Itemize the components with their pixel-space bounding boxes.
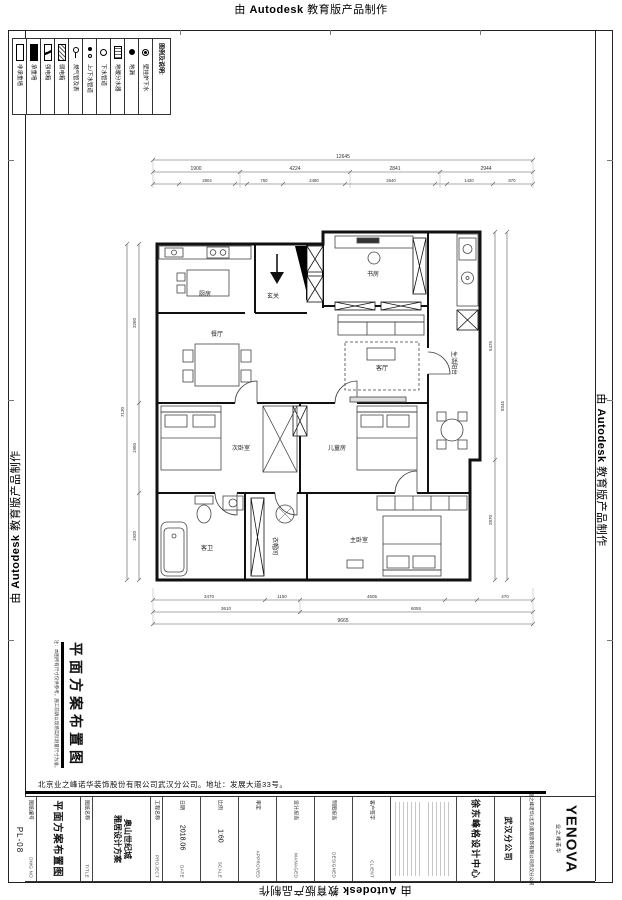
legend-item: 弱电箱 (55, 39, 69, 114)
banner-prefix: 由 (234, 4, 246, 16)
legend-label: 壁挂炉下水 (142, 64, 150, 110)
floor-plan: 12645 1900 4224 2841 2944 2804 760 2480 … (95, 148, 585, 653)
title-block: 图纸编号DWG NO 平面方案布置图 图纸名称TITLE 奥山世纪城雅居设计方案… (25, 796, 595, 882)
tb-value: 徐东峰格设计中心 (469, 799, 482, 879)
dimension-text-left: 3260 1950 1920 7130 (120, 317, 137, 541)
tb-label: MANAGED (293, 853, 298, 878)
yenova-logo: YENOVA (563, 805, 580, 873)
boiler-drain-icon (139, 42, 152, 62)
legend-label: 非承重墙 (16, 64, 24, 110)
legend-label: 地漏 (128, 64, 136, 110)
dim: 6055 (411, 606, 422, 611)
dim: 2480 (309, 178, 319, 183)
fold-tick (180, 30, 181, 35)
tb-label: 审定 (254, 800, 261, 810)
dim: 2841 (389, 166, 400, 172)
dimension-text-right: 5475 2870 8345 (488, 340, 505, 525)
dimension-chain-top (151, 158, 535, 188)
tb-branch: 武汉分公司 (495, 797, 521, 881)
bearing-wall-hatch (251, 238, 478, 576)
sheet-title-block: 平面方案布置图 注：本图所有尺寸仅供参考，施工前请以现场实际测量尺寸为准。 (44, 630, 96, 780)
tb-title-labels: 图纸名称TITLE (81, 797, 93, 881)
tb-label: DATE (179, 865, 184, 878)
banner-suffix: 教育版产品制作 (307, 4, 388, 16)
dim-left-total: 7130 (120, 406, 125, 417)
tb-label: 制图担当 (330, 800, 337, 820)
legend-item: 燃气管及表 (69, 39, 83, 114)
tb-label: CLIENT (369, 860, 374, 878)
room-label-bath: 客卫 (201, 544, 213, 552)
room-label-bedroom: 次卧室 (232, 444, 250, 452)
tb-project-value: 奥山世纪城雅居设计方案 (93, 797, 151, 881)
legend-label: 强电箱 (44, 64, 52, 110)
tb-sheet-title-value: 平面方案布置图 (37, 797, 81, 881)
tb-label: 客户签字 (368, 800, 375, 820)
bearing-wall-icon (27, 42, 40, 62)
legend-item: 非承重墙 (13, 39, 27, 114)
strong-power-box-icon (41, 42, 54, 62)
room-label-entry: 玄关 (267, 292, 279, 300)
room-label-kitchen: 厨房 (199, 290, 211, 298)
tb-label: DESIGNED (331, 852, 336, 878)
tb-date: 日期2018.06DATE (163, 797, 201, 881)
tb-label: 图纸编号 (27, 800, 34, 820)
drain-pipe-icon (97, 42, 110, 62)
tb-client: 客户签字CLIENT (353, 797, 391, 881)
legend-item: 上/下水管道 (83, 39, 97, 114)
non-bearing-wall-icon (13, 42, 26, 62)
tb-design-center: 徐东峰格设计中心 (457, 797, 495, 881)
room-label-study: 书房 (367, 270, 379, 278)
legend-item: 地暖分水器 (111, 39, 125, 114)
tb-project-labels: 工程名称PROJECT (151, 797, 163, 881)
tb-value: 武汉分公司 (502, 817, 513, 862)
floor-drain-icon (125, 42, 138, 62)
tb-value: 平面方案布置图 (51, 801, 66, 878)
sheet-title: 平面方案布置图 (62, 642, 87, 768)
room-label-living: 客厅 (376, 364, 388, 372)
dim: 870 (508, 178, 516, 183)
autodesk-wordmark: Autodesk (249, 4, 303, 16)
dim: 1150 (277, 594, 287, 599)
dim: 470 (501, 594, 509, 599)
dim: 4605 (367, 594, 378, 599)
tb-label: 日期 (178, 800, 185, 810)
gas-pipe-meter-icon (69, 42, 82, 62)
entry-door-leaf (295, 246, 307, 294)
yenova-logo-sub: 业之峰诺华 (555, 824, 562, 854)
tb-label: 工程名称 (153, 800, 160, 820)
fold-tick (8, 160, 14, 161)
dim-top-total: 12645 (336, 154, 350, 160)
dim: 1920 (132, 530, 137, 541)
tb-dwgno-labels: 图纸编号DWG NO (25, 797, 37, 881)
room-label-kids: 儿童房 (328, 444, 346, 452)
tb-label: 比例 (216, 800, 223, 810)
tb-label: PROJECT (154, 855, 159, 878)
titleblock-divider (25, 791, 546, 794)
legend-label: 上/下水管道 (86, 64, 94, 110)
dim: 1950 (132, 442, 137, 453)
tb-approved: 审定APPROVED (239, 797, 277, 881)
fold-tick (607, 160, 613, 161)
door-swings (215, 352, 450, 515)
fold-tick (480, 30, 481, 35)
dim: 3470 (204, 594, 215, 599)
legend-header: 图例及说明: (153, 39, 170, 114)
fold-tick (607, 640, 613, 641)
tb-label: DWG NO (28, 857, 33, 878)
legend-label: 弱电箱 (58, 64, 66, 110)
floor-heating-manifold-icon (111, 42, 124, 62)
tb-value: 雅居设计方案 (113, 815, 122, 863)
fine-print-lines (395, 802, 420, 876)
dim-bottom-total: 9665 (337, 618, 348, 624)
legend-item: 壁挂炉下水 (139, 39, 153, 114)
tb-label: SCALE (217, 862, 222, 878)
fold-tick (8, 400, 14, 401)
fold-tick (330, 30, 331, 35)
dim: 2944 (480, 166, 491, 172)
tb-value: 奥山世纪城 (123, 819, 132, 859)
legend-item: 地漏 (125, 39, 139, 114)
company-address-line: 北京业之峰诺华装饰股份有限公司武汉分公司。地址：发展大道33号。 (38, 779, 458, 790)
room-label-dining: 餐厅 (211, 330, 223, 338)
legend-item: 承重墙 (27, 39, 41, 114)
weak-power-box-icon (55, 42, 68, 62)
fine-print-lines (428, 802, 453, 876)
autodesk-banner-bottom: 由 Autodesk 教育版产品制作 (225, 885, 445, 899)
dim: 3260 (132, 317, 137, 328)
tb-label: TITLE (84, 864, 89, 878)
tb-label: 图纸名称 (83, 800, 90, 820)
dimension-text-bottom: 3470 1150 4605 470 3610 6055 9665 (204, 594, 509, 624)
tb-value: 1:60 (216, 829, 223, 843)
sheet-note: 注：本图所有尺寸仅供参考，施工前请以现场实际测量尺寸为准。 (54, 640, 60, 771)
legend-label: 燃气管及表 (72, 64, 80, 110)
tb-designed: 制图担当DESIGNED (315, 797, 353, 881)
dim: 1900 (190, 166, 201, 172)
entry-arrow-icon (270, 272, 284, 284)
dim: 4224 (289, 166, 300, 172)
legend-label: 地暖分水器 (114, 64, 122, 110)
legend-header-label: 图例及说明: (157, 43, 166, 109)
dim: 3610 (221, 606, 232, 611)
legend-box: 非承重墙 承重墙 强电箱 弱电箱 燃气管及表 上/下水管道 下水管道 地暖分水器… (12, 38, 171, 115)
margin-line-right (595, 30, 596, 881)
autodesk-banner-top: 由 Autodesk 教育版产品制作 (0, 1, 622, 17)
fold-tick (607, 400, 613, 401)
dim: 760 (260, 178, 268, 183)
tb-fine-print (391, 797, 457, 881)
tb-managed: 设计担当MANAGED (277, 797, 315, 881)
tb-value: 2018.06 (178, 825, 185, 850)
tb-scale: 比例1:60SCALE (201, 797, 239, 881)
dim: 2640 (386, 178, 396, 183)
tb-label: APPROVED (255, 851, 260, 878)
drawing-sheet: { "banner": { "prefix": "由", "brand": "A… (0, 0, 622, 900)
legend-label: 下水管道 (100, 64, 108, 110)
room-label-master: 主卧室 (350, 536, 368, 544)
margin-line-left (25, 30, 26, 881)
legend-item: 下水管道 (97, 39, 111, 114)
tb-label: 设计担当 (292, 800, 299, 820)
tb-logo: YENOVA 业之峰诺华 (541, 797, 593, 881)
dim: 1420 (464, 178, 474, 183)
tb-value: 业之峰诺华(北京)家居装饰有限公司武汉分公司 (528, 793, 534, 886)
dim: 2804 (202, 178, 212, 183)
fold-tick (8, 640, 14, 641)
legend-label: 承重墙 (30, 64, 38, 110)
dimension-text-top: 12645 1900 4224 2841 2944 2804 760 2480 … (190, 154, 516, 183)
supply-drain-pipes-icon (83, 42, 96, 62)
dim: 5475 (488, 340, 493, 351)
dim-right-total: 8345 (500, 400, 505, 411)
room-label-closet: 衣帽间 (271, 537, 279, 555)
dim: 2870 (488, 514, 493, 525)
legend-item: 强电箱 (41, 39, 55, 114)
sheet-number: PL-08 (8, 810, 24, 870)
tb-company: 业之峰诺华(北京)家居装饰有限公司武汉分公司 (521, 797, 541, 881)
room-label-utility: 生活阳台 (450, 351, 458, 375)
